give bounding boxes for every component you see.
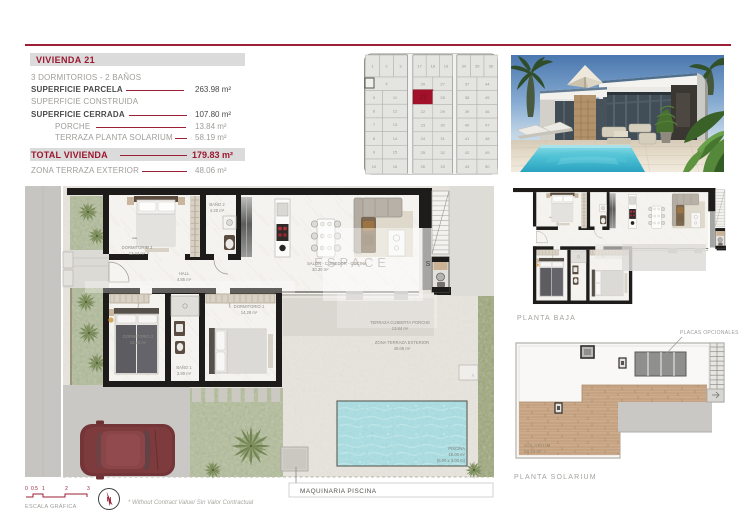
svg-text:38: 38 [465,95,470,100]
svg-text:DORMITORIO 2: DORMITORIO 2 [123,334,154,339]
svg-text:15: 15 [393,150,398,155]
svg-text:49: 49 [485,150,490,155]
svg-text:2: 2 [65,486,68,492]
svg-text:28: 28 [440,95,445,100]
svg-text:13.44 m²: 13.44 m² [129,251,146,256]
svg-text:32: 32 [440,150,445,155]
svg-text:42: 42 [465,150,470,155]
svg-text:21: 21 [419,95,427,102]
svg-text:SALÓN - COMEDOR - COCINA: SALÓN - COMEDOR - COCINA [307,261,367,266]
svg-text:40: 40 [465,122,470,127]
svg-text:17: 17 [417,64,422,69]
svg-text:25: 25 [421,150,426,155]
svg-text:33: 33 [440,164,445,169]
svg-text:BAÑO 2: BAÑO 2 [209,202,225,207]
svg-text:0: 0 [25,486,28,492]
svg-text:13.84 m²: 13.84 m² [392,326,409,331]
svg-text:23: 23 [421,122,426,127]
svg-text:48.06 m²: 48.06 m² [394,346,411,351]
svg-text:18: 18 [431,64,436,69]
svg-text:58.19 m²: 58.19 m² [524,449,542,454]
svg-text:24: 24 [421,136,426,141]
svg-text:S: S [426,261,431,268]
svg-text:47: 47 [485,122,490,127]
svg-text:HALL: HALL [179,271,190,276]
svg-text:N: N [107,497,112,504]
svg-text:BAÑO 1: BAÑO 1 [176,365,192,370]
svg-text:45: 45 [485,95,490,100]
svg-text:20: 20 [421,81,426,86]
svg-text:50: 50 [485,164,490,169]
svg-text:0.5: 0.5 [31,486,38,492]
svg-text:14: 14 [393,136,398,141]
svg-text:16: 16 [393,164,398,169]
svg-text:35: 35 [475,64,480,69]
svg-text:26: 26 [421,164,426,169]
svg-text:TERRAZA CUBIERTA PORCHE: TERRAZA CUBIERTA PORCHE [370,320,430,325]
svg-text:43: 43 [465,164,470,169]
svg-text:46: 46 [485,109,490,114]
svg-text:48: 48 [485,136,490,141]
svg-text:ZONA TERRAZA EXTERIOR: ZONA TERRAZA EXTERIOR [375,340,429,345]
svg-text:10: 10 [372,164,377,169]
svg-text:DORMITORIO 1: DORMITORIO 1 [234,304,265,309]
svg-text:SOLARIUM: SOLARIUM [524,443,551,448]
svg-text:30.30 m²: 30.30 m² [312,267,329,272]
svg-text:22: 22 [421,109,426,114]
svg-text:39: 39 [465,109,470,114]
svg-text:44: 44 [485,81,490,86]
svg-text:36: 36 [489,64,494,69]
svg-text:29: 29 [440,109,445,114]
svg-text:34: 34 [462,64,467,69]
svg-text:37: 37 [465,81,470,86]
svg-text:12: 12 [393,109,398,114]
svg-text:27: 27 [440,81,445,86]
svg-text:4.85 m²: 4.85 m² [177,277,192,282]
svg-text:ESCALA GRÁFICA: ESCALA GRÁFICA [25,503,77,510]
svg-text:41: 41 [465,136,470,141]
svg-text:1: 1 [42,486,45,492]
svg-text:13: 13 [393,122,398,127]
svg-text:3.90 m²: 3.90 m² [177,371,192,376]
svg-text:10.20 m²: 10.20 m² [130,340,147,345]
svg-text:31: 31 [440,136,445,141]
svg-text:MAQUINARIA PISCINA: MAQUINARIA PISCINA [300,488,377,495]
svg-text:4.20 m²: 4.20 m² [210,208,225,213]
svg-text:19: 19 [444,64,449,69]
svg-text:DORMITORIO 3: DORMITORIO 3 [122,245,153,250]
svg-text:30: 30 [440,122,445,127]
svg-text:PISCINA: PISCINA [448,446,465,451]
svg-text:14.28 m²: 14.28 m² [241,310,258,315]
svg-text:3: 3 [87,486,90,492]
